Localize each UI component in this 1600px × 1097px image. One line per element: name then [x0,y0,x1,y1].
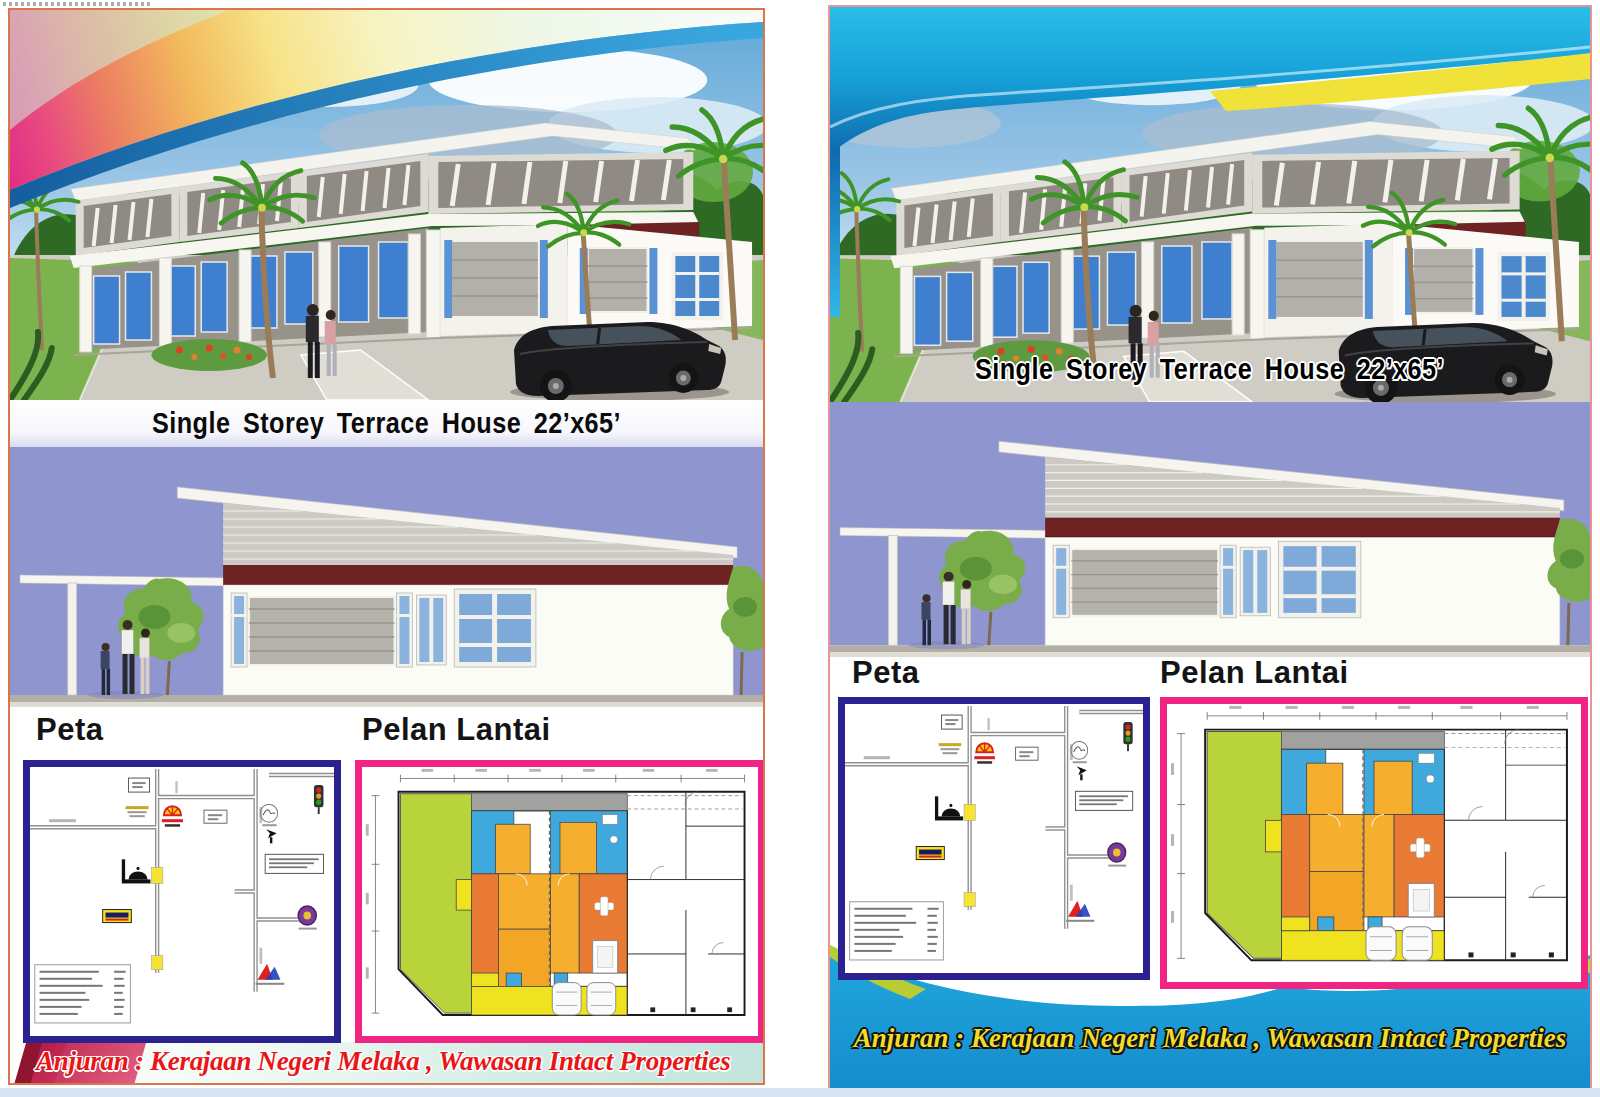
house-title: Single Storey Terrace House 22’x65’ [976,353,1445,386]
flyer-left: Single Storey Terrace House 22’x65’ Peta… [8,8,765,1085]
floor-plan-heading: Pelan Lantai [362,712,551,748]
floor-plan-drawing [1167,704,1581,982]
location-map [30,767,334,1036]
footer-text: Anjuran : Kerajaan Negeri Melaka , Wawas… [830,1023,1590,1054]
flyer-right: Single Storey Terrace House 22’x65’ Peta… [828,5,1592,1090]
location-map [845,704,1143,973]
map-heading: Peta [852,655,919,691]
house-title: Single Storey Terrace House 22’x65’ [152,407,621,440]
house-elevation-drawing [10,447,763,707]
footer-text: Anjuran : Kerajaan Negeri Melaka , Wawas… [36,1046,730,1077]
floor-plan-drawing [362,767,758,1036]
tiny-header-artifact [3,2,153,6]
floor-plan-box [1160,697,1588,989]
footer-banner: Anjuran : Kerajaan Negeri Melaka , Wawas… [10,1042,763,1085]
cyan-wave-decoration [830,7,1590,317]
house-title-band: Single Storey Terrace House 22’x65’ [10,400,763,447]
rainbow-wave-decoration [10,10,763,220]
location-map-box [838,697,1150,980]
map-heading: Peta [36,712,103,748]
house-title-band: Single Storey Terrace House 22’x65’ [830,353,1590,386]
page-bottom-strip [0,1088,1600,1097]
location-map-box [23,760,341,1043]
floor-plan-heading: Pelan Lantai [1160,655,1349,691]
house-elevation-drawing [830,402,1590,657]
floor-plan-box [355,760,765,1043]
